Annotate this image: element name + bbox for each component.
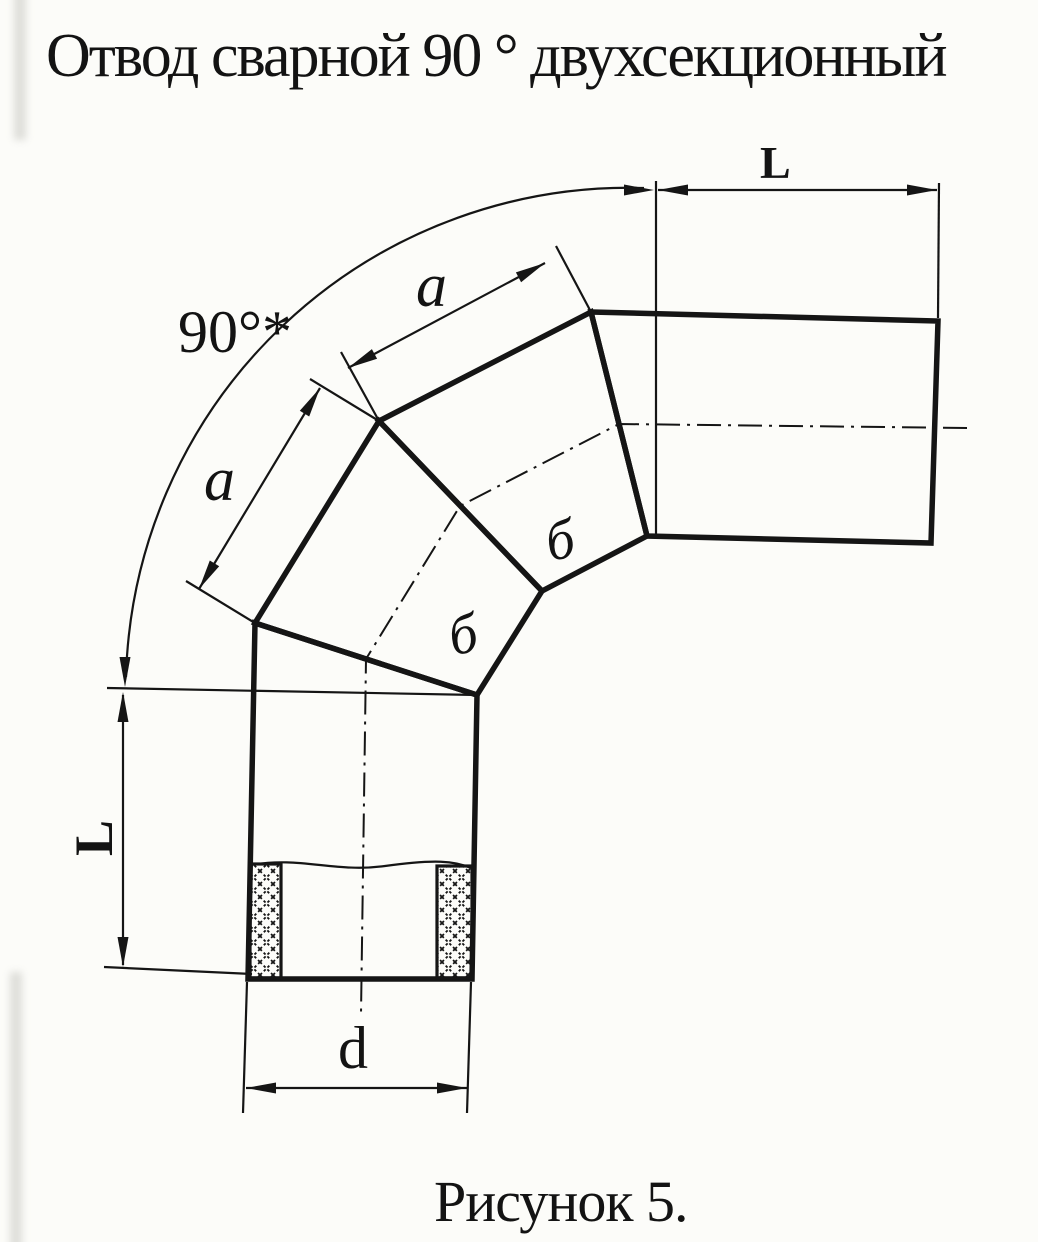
ext-line-a-lower-1 [186, 581, 255, 623]
pipe-outline [248, 312, 938, 979]
ext-line-bottom-pipe-end [104, 967, 252, 974]
segment-label-lower: a [204, 446, 235, 514]
arrow-a-upper-lower [348, 349, 377, 368]
arc-arrow-top [624, 185, 654, 196]
elbow-diagram: 90°* L L a a d б б [0, 0, 1038, 1242]
length-label-left: L [64, 820, 124, 856]
socket-wall-hatch-left [250, 864, 281, 978]
pipe-section-right-straight [591, 312, 938, 543]
ext-line-a-upper-2 [556, 246, 591, 312]
pipe-end-socket [250, 862, 472, 978]
ext-line-d-right [467, 982, 471, 1113]
weld-seam-label-1: б [443, 602, 485, 669]
arrow-a-upper-upper [516, 263, 545, 282]
angle-arc-group [120, 185, 655, 688]
ext-line-d-left [243, 982, 247, 1113]
pipe-section-upper-middle [379, 312, 647, 591]
segment-label-upper: a [416, 252, 447, 320]
weld-seam-label-2: б [540, 507, 582, 574]
angle-label: 90°* [178, 299, 292, 365]
arrow-d-right [437, 1083, 467, 1094]
ext-line-right-pipe-end [938, 183, 939, 318]
arrow-L-left-top [118, 692, 129, 722]
arc-arrow-bottom [120, 657, 131, 687]
arrow-d-left [246, 1083, 276, 1094]
arrow-a-lower-top [300, 388, 320, 417]
diameter-label: d [338, 1015, 368, 1081]
arrow-L-left-bottom [118, 937, 129, 967]
ext-line-left-tangent [107, 688, 477, 695]
angle-arc [126, 188, 644, 677]
arrow-L-top-right [907, 185, 937, 196]
socket-wall-hatch-right [437, 866, 472, 978]
length-label-top: L [760, 137, 791, 188]
dimension-labels: 90°* L L a a d б б [64, 137, 791, 1081]
scanned-drawing-page: Отвод сварной 90 ° двухсекционный [0, 0, 1038, 1242]
pipe-section-lower-middle [255, 421, 542, 695]
arrow-a-lower-bottom [199, 561, 219, 590]
figure-caption: Рисунок 5. [434, 1168, 688, 1235]
arrow-L-top-left [658, 185, 688, 196]
